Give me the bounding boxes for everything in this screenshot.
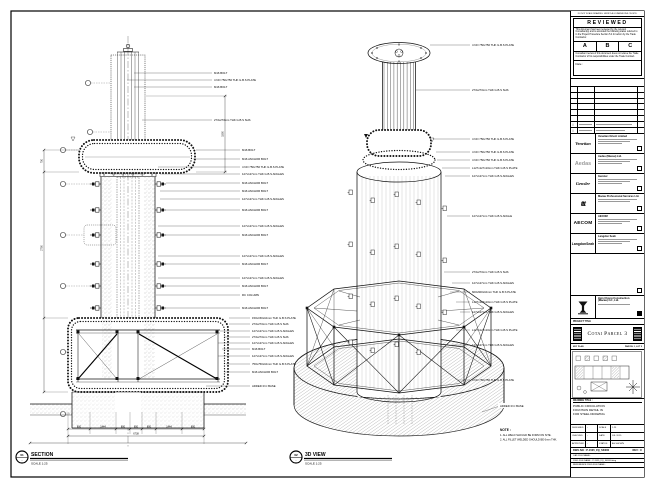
callout-label: 127x127mm THK G.B.S ANGLES	[242, 276, 284, 280]
callout-label: 4 NO 750x750 THK G.B.S PLATE	[472, 158, 514, 162]
drawing-note: NOTE : 1. ALL WELD SHOULD BE FORM ON SIT…	[500, 428, 557, 442]
info-label: STATUS	[598, 440, 611, 447]
file-info: CAD FILE NAME : DWG FILE NAME : P-1535_F…	[571, 454, 644, 468]
callout-label: ADDED R.C BASE	[252, 384, 276, 388]
project-name-box: Cotai Parcel 3	[571, 325, 644, 344]
callout-label: 273x273mm THK G.B.S SHS	[472, 270, 509, 274]
consultant-name: Venetian Orient Limited	[598, 136, 642, 139]
grade-a: A	[574, 42, 597, 51]
view-scale: SCALE 1:25	[31, 462, 48, 466]
info-value: -	[586, 425, 598, 432]
consultant-name: Aedas (Macau) Ltd.	[598, 156, 642, 159]
dimension-label: 2700	[41, 245, 44, 251]
note-title: NOTE :	[500, 428, 511, 432]
consultant-name: Macau Professional Services Ltd.	[598, 196, 642, 199]
gensler-logo: Gensler	[576, 181, 590, 186]
dimension-label: 800	[147, 426, 152, 429]
note-line: 2. ALL FILLET WELDED SHOULD BE 6mm THK.	[500, 438, 557, 442]
dwg-label: DWG NO :	[573, 449, 586, 452]
drawing-sheet: 1500	[0, 0, 650, 488]
callout-label: 150x150x10mm THK G.B.S PLATE	[252, 316, 296, 320]
callout-label: 273x273mm THK G.B.S SHS	[252, 322, 289, 326]
consultant-box-aecom: AECOM AECOM	[571, 214, 644, 234]
iso-top-assembly	[368, 43, 430, 132]
info-label: SCALE	[598, 425, 611, 432]
drawing-title-line: FOR STEEL DRAWING	[573, 412, 642, 416]
mps-logo: ttt	[581, 199, 585, 208]
dimension-label: 650	[134, 426, 139, 429]
checkbox-icon	[637, 206, 643, 212]
detail-bubble-sub: -	[296, 459, 297, 463]
checkbox-icon	[637, 288, 643, 294]
info-label: DATE	[598, 432, 611, 439]
callout-label: 127x127mm THK G.B.S ANGLES	[252, 354, 294, 358]
aecom-logo: AECOM	[574, 221, 593, 226]
file-line: REFERENCE DWG FILE NAME :	[571, 462, 644, 467]
drawing-title-label: DRAWING TITLE :	[573, 400, 642, 403]
callout-label: 127x127mm THK G.B.S ANGLES	[242, 254, 284, 258]
dimension-label: 1444	[166, 426, 172, 429]
stamp-grades: A B C	[574, 41, 641, 52]
consultant-box-aedas: Aedas Aedas (Macau) Ltd.	[571, 154, 644, 174]
key-plan-ref: PARCEL 1, LOT 2	[625, 344, 642, 349]
callout-label: M16 ANCHOR BOLT	[242, 157, 268, 161]
revision-table: △ △	[571, 87, 644, 134]
callout-label: M16 BOLT	[252, 347, 266, 351]
callout-label: 4 NO 750x750 THK G.B.S PLATE	[472, 43, 514, 47]
callout-label: L127x127x10mm THK G.B.S PLATE	[472, 300, 518, 304]
grade-c: C	[619, 42, 641, 51]
callout-label: 273x273mm THK G.B.S SHS	[214, 118, 251, 122]
revision-triangle-icon	[71, 137, 75, 141]
consultant-name: Langdon Seah	[598, 236, 642, 239]
section-view-title: 01 - SECTION SCALE 1:25	[16, 451, 128, 466]
checkbox-icon	[637, 186, 643, 192]
callout-label: RC COLUMN	[242, 293, 259, 297]
dimension-label: 800	[191, 426, 196, 429]
info-value: AS SHOWN	[611, 440, 644, 447]
section-basin	[71, 137, 195, 173]
callout-label: L127x127x10mm THK G.B.S PLATE	[472, 166, 518, 170]
key-plan-title: KEY PLAN	[573, 344, 583, 349]
blank-footer	[571, 468, 644, 477]
callout-label: M16 ANCHOR BOLT	[242, 262, 268, 266]
stamp-paragraph: Consultant review of this document does …	[574, 52, 641, 60]
callout-label: M16 ANCHOR BOLT	[242, 181, 268, 185]
checkbox-icon	[637, 226, 643, 232]
info-label: DESIGNED	[571, 425, 586, 432]
drawing-title-box: DRAWING TITLE : PUBLIC CIRCULATION FOUNT…	[571, 399, 644, 425]
checkbox-icon	[637, 166, 643, 172]
checkbox-icon	[637, 146, 643, 152]
info-value: -	[586, 432, 598, 439]
key-plan	[571, 350, 644, 399]
callout-label: 127x127mm THK G.B.S ANGLES	[242, 172, 284, 176]
contractor-name: (Macau) Co., Ltd.	[598, 300, 642, 303]
callout-label: 4 NO 750x750 THK G.B.S PLATE	[242, 165, 284, 169]
revision-marker-icon: △	[571, 128, 578, 133]
drawing-canvas: 1500	[0, 0, 650, 488]
dimension-label: 1444	[100, 426, 106, 429]
rev-value: C	[640, 449, 642, 452]
iso-view-title: 02 - 3D VIEW SCALE 1:25	[290, 451, 392, 466]
callout-label: 4 NO 750x750 THK G.B.S PLATE	[472, 378, 514, 382]
consultant-box-venetian: Venetian Venetian Orient Limited	[571, 134, 644, 154]
callout-label: 127x127mm THK G.B.S ANGLES	[252, 341, 294, 345]
callout-label: 127x127mm THK G.B.S ANGLE	[472, 214, 512, 218]
view-scale: SCALE 1:25	[305, 462, 322, 466]
callout-label: 127x127mm THK G.B.S ANGLES	[252, 329, 294, 333]
section-foundation	[30, 392, 246, 428]
compass-icon	[626, 380, 640, 394]
callout-label: 750x750x10mm THK G.B.S PLATE	[252, 362, 296, 366]
consultant-box-gensler: Gensler Gensler	[571, 174, 644, 194]
detail-bubble: 01	[20, 453, 24, 457]
callout-label: 127x127mm THK G.B.S ANGLES	[472, 310, 514, 314]
aedas-logo: Aedas	[575, 161, 591, 167]
ornament-icon	[573, 327, 582, 341]
contractor-box: Hsin Chong Construction (Macau) Co., Ltd…	[571, 296, 644, 319]
info-label: APPROVED	[571, 440, 586, 447]
blank-consultant-box	[571, 254, 644, 296]
ornament-icon	[633, 327, 642, 341]
section-base-truss	[68, 318, 228, 392]
dimension-label: 750	[41, 158, 44, 163]
title-block: DO NOT SCALE DRAWING. VERIFY ALL DIMENSI…	[570, 11, 644, 477]
detail-bubble-sub: -	[22, 459, 23, 463]
checkbox-icon	[637, 246, 643, 252]
info-table: DESIGNED - SCALE 1:25 CHECKED - DATE JUL…	[571, 425, 644, 448]
callout-label: M16 ANCHOR BOLT	[242, 284, 268, 288]
revision-row: △	[571, 127, 644, 133]
section-view: 1500	[16, 36, 296, 466]
callout-label: M16 ANCHOR BOLT	[242, 233, 268, 237]
blank-box	[571, 79, 644, 87]
callout-label: 273x273mm THK G.B.S SHS	[472, 88, 509, 92]
grade-b: B	[597, 42, 620, 51]
callout-label: 273x273mm THK G.B.S SHS	[252, 335, 289, 339]
callout-label: 127x127mm THK G.B.S ANGLES	[472, 343, 514, 347]
iso-view: 4 NO 750x750 THK G.B.S PLATE 273x273mm T…	[290, 43, 557, 466]
callout-label: L127x127x10mm THK G.B.S PLATE	[472, 328, 518, 332]
callout-label: M16 ANCHOR BOLT	[252, 370, 278, 374]
dimension-label: 800	[121, 426, 126, 429]
consultant-name: AECOM	[598, 216, 642, 219]
dwg-number: P-1535_FQ_SK000	[586, 449, 609, 452]
note-line: 1. ALL WELD SHOULD BE FORM ON SITE.	[500, 433, 552, 437]
view-title: 3D VIEW	[305, 452, 326, 458]
callout-label: M16 ANCHOR BOLT	[242, 208, 268, 212]
callout-label: 127x127mm THK G.B.S ANGLES	[242, 197, 284, 201]
consultant-box-langdon: LangdonSeah Langdon Seah	[571, 234, 644, 254]
callout-label: 600x600x10mm THK G.B.S PLATE	[472, 290, 516, 294]
dimension-label: 6738	[133, 433, 139, 436]
stamp-title: REVIEWED	[574, 19, 641, 28]
callout-label: 4 NO 750x750 THK G.B.S PLATE	[214, 78, 256, 82]
callout-label: ADDED R.C BASE	[500, 404, 524, 408]
contractor-crest-icon	[576, 300, 590, 315]
callout-label: 127x127mm THK G.B.S ANGLES	[242, 224, 284, 228]
callout-label: M16 BOLT	[214, 71, 228, 75]
stamp-date-label: Date :	[574, 60, 641, 69]
review-stamp: REVIEWED This document has been reviewed…	[571, 17, 644, 79]
key-plan-map	[571, 350, 643, 399]
callout-label: 127x127mm THK G.B.S ANGLES	[472, 174, 514, 178]
consultant-name: Gensler	[598, 176, 642, 179]
venetian-logo: Venetian	[575, 141, 591, 146]
info-value: JUL 2015	[611, 432, 644, 439]
callout-label: 4 NO 750x750 THK G.B.S PLATE	[472, 137, 514, 141]
info-value: -	[586, 440, 598, 447]
info-value: 1:25	[611, 425, 644, 432]
callout-label: 127x127mm THK G.B.S ANGLES	[472, 281, 514, 285]
project-name: Cotai Parcel 3	[588, 331, 628, 337]
langdon-seah-logo: LangdonSeah	[572, 242, 594, 246]
callout-label: M16 ANCHOR BOLT	[242, 306, 268, 310]
dimension-label: 800	[77, 426, 82, 429]
callout-label: 4 NO 750x750 THK G.B.S PLATE	[472, 150, 514, 154]
detail-bubble: 02	[294, 453, 298, 457]
callout-label: M16 ANCHOR BOLT	[242, 189, 268, 193]
callout-label: M16 BOLT	[242, 148, 256, 152]
callout-label: M16 BOLT	[214, 85, 228, 89]
info-label: CHECKED	[571, 432, 586, 439]
checkbox-icon	[637, 311, 643, 317]
dimension-label: 1500	[222, 131, 225, 137]
consultant-box-mps: ttt Macau Professional Services Ltd.	[571, 194, 644, 214]
rev-label: REV :	[632, 449, 639, 452]
stamp-paragraph: This document has been reviewed by the r…	[574, 28, 641, 42]
view-title: SECTION	[31, 452, 54, 458]
iso-collar	[363, 130, 435, 170]
